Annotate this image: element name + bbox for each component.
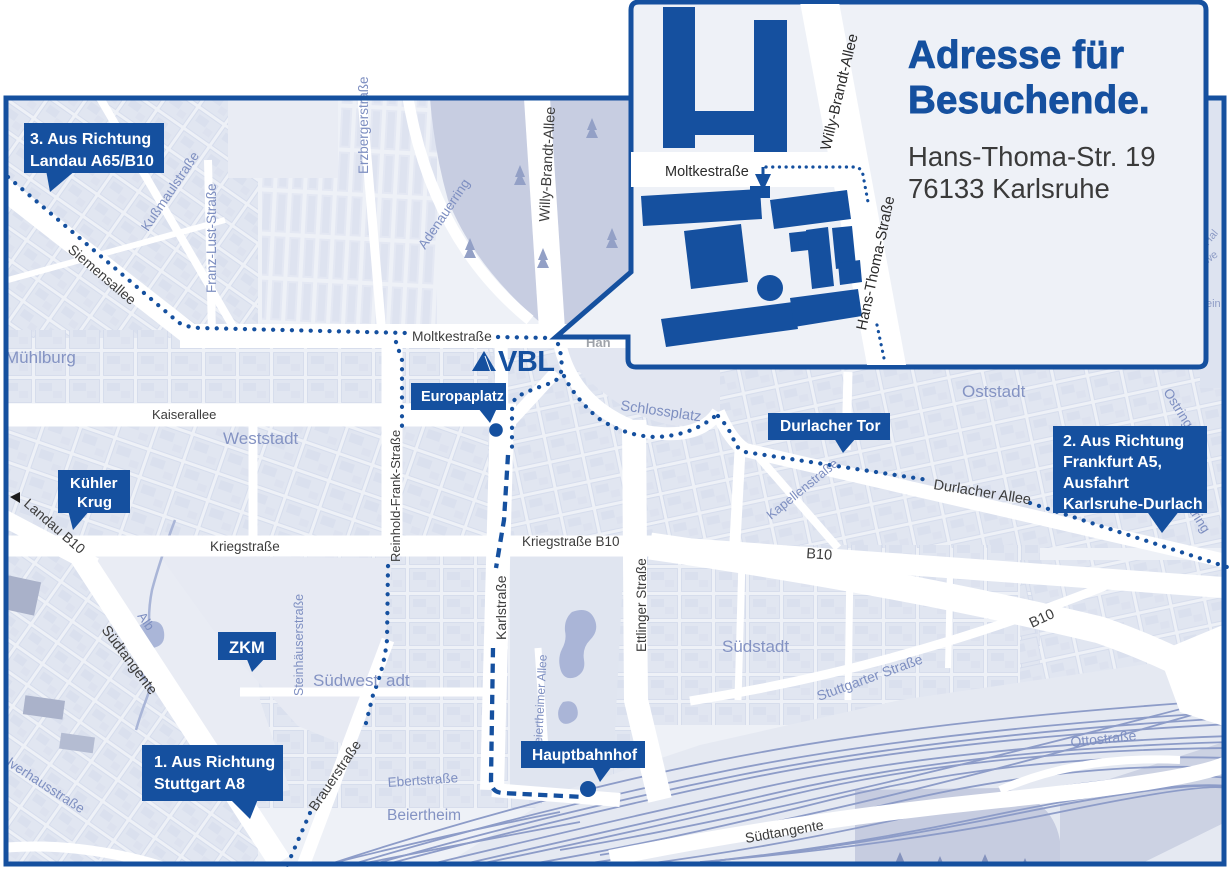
svg-text:Stuttgart A8: Stuttgart A8 xyxy=(154,776,245,793)
svg-text:Frankfurt A5,: Frankfurt A5, xyxy=(1063,454,1162,471)
svg-text:Steinhäuserstraße: Steinhäuserstraße xyxy=(292,594,306,696)
svg-text:Franz-Lust-Straße: Franz-Lust-Straße xyxy=(204,183,219,293)
svg-text:Hauptbahnhof: Hauptbahnhof xyxy=(532,747,638,764)
svg-text:Kaiserallee: Kaiserallee xyxy=(152,407,216,422)
svg-text:Durlacher Tor: Durlacher Tor xyxy=(780,418,881,435)
svg-text:Südwest: Südwest xyxy=(313,671,378,690)
svg-text:Oststadt: Oststadt xyxy=(962,382,1026,401)
svg-text:Adresse für: Adresse für xyxy=(908,34,1124,77)
svg-text:Südstadt: Südstadt xyxy=(722,637,789,656)
svg-text:adt: adt xyxy=(386,671,410,690)
svg-text:Karlsruhe-Durlach: Karlsruhe-Durlach xyxy=(1063,496,1203,513)
svg-text:Kühler: Kühler xyxy=(70,475,118,492)
svg-text:Erzbergerstraße: Erzbergerstraße xyxy=(356,76,371,174)
svg-text:Beiertheim: Beiertheim xyxy=(387,807,461,824)
svg-text:Moltkestraße: Moltkestraße xyxy=(665,164,749,180)
svg-text:Kriegstraße: Kriegstraße xyxy=(210,539,280,554)
svg-text:Mühlburg: Mühlburg xyxy=(5,348,76,367)
svg-text:Europaplatz: Europaplatz xyxy=(421,389,504,405)
svg-text:Ettlinger Straße: Ettlinger Straße xyxy=(634,558,649,652)
svg-text:1. Aus Richtung: 1. Aus Richtung xyxy=(154,754,275,771)
svg-text:Reinhold-Frank-Straße: Reinhold-Frank-Straße xyxy=(388,430,403,562)
svg-text:ZKM: ZKM xyxy=(229,639,265,657)
svg-text:76133 Karlsruhe: 76133 Karlsruhe xyxy=(908,173,1110,204)
svg-text:Besuchende.: Besuchende. xyxy=(908,79,1150,122)
svg-text:Karlstraße: Karlstraße xyxy=(493,575,509,640)
svg-text:Ausfahrt: Ausfahrt xyxy=(1063,475,1129,492)
svg-text:VBL: VBL xyxy=(498,346,555,378)
svg-text:B10: B10 xyxy=(806,546,833,564)
svg-text:Krug: Krug xyxy=(77,494,112,511)
svg-text:Landau A65/B10: Landau A65/B10 xyxy=(30,153,154,170)
svg-text:Hans-Thoma-Str. 19: Hans-Thoma-Str. 19 xyxy=(908,141,1156,172)
svg-text:3. Aus Richtung: 3. Aus Richtung xyxy=(30,131,151,148)
svg-text:Moltkestraße: Moltkestraße xyxy=(412,329,492,344)
svg-text:2. Aus Richtung: 2. Aus Richtung xyxy=(1063,433,1184,450)
svg-text:Weststadt: Weststadt xyxy=(223,429,299,448)
svg-text:Kriegstraße B10: Kriegstraße B10 xyxy=(522,534,620,549)
